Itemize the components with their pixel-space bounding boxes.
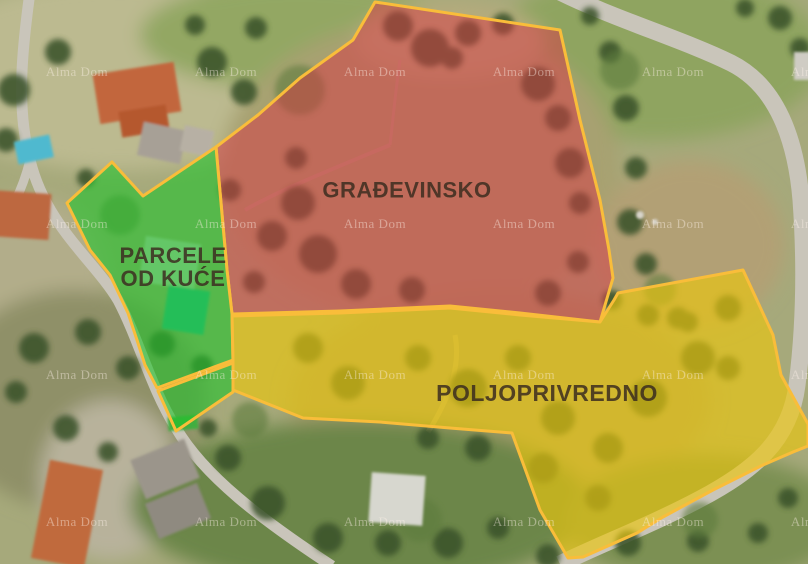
aerial-photo [0, 0, 808, 564]
house-roof [0, 190, 52, 240]
aerial-zoning-map: GRAĐEVINSKOPARCELE OD KUĆEPOLJOPRIVREDNO… [0, 0, 808, 564]
white-building [368, 472, 425, 526]
concrete-pad [794, 52, 808, 80]
